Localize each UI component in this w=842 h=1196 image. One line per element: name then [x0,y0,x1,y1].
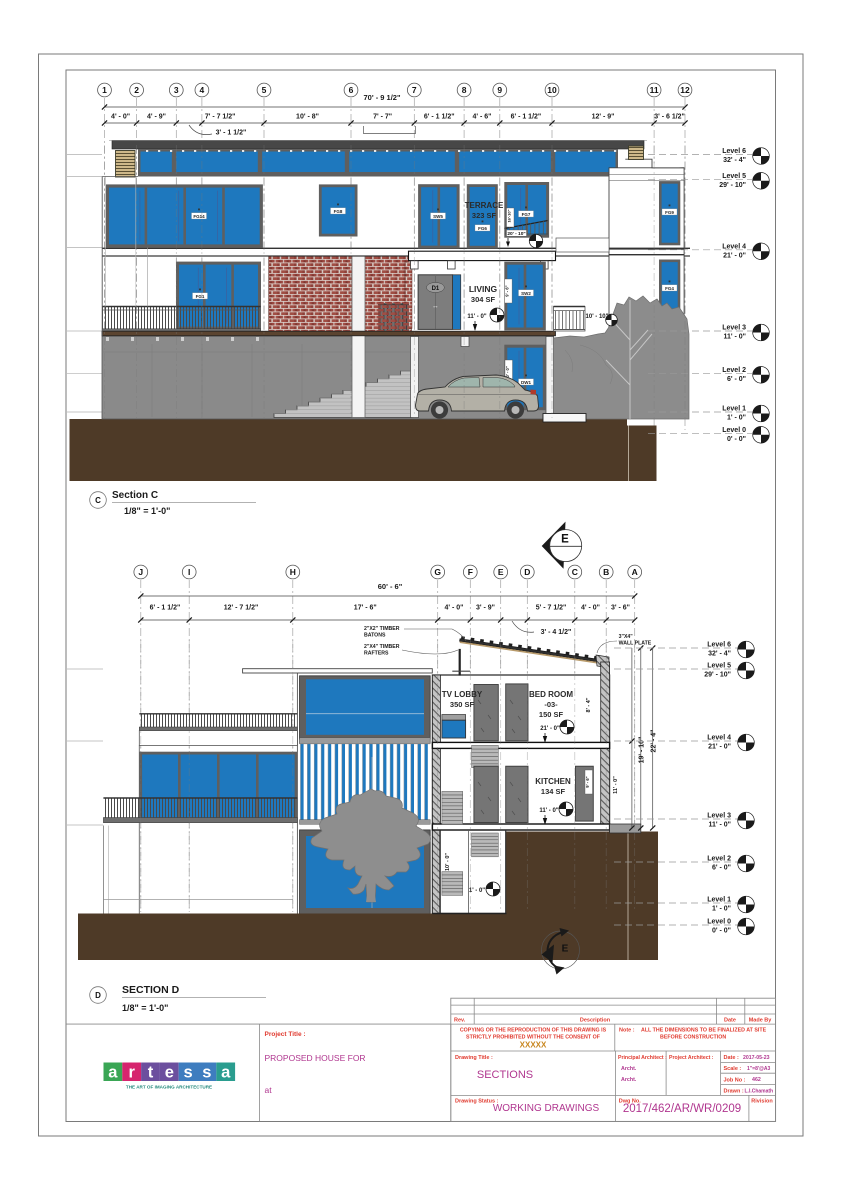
svg-text:BED ROOM: BED ROOM [529,690,573,699]
svg-text:THE ART OF IMAGING ARCHITECTUR: THE ART OF IMAGING ARCHITECTURE [126,1085,212,1090]
svg-text:1: 1 [102,85,107,95]
svg-text:12: 12 [680,85,690,95]
svg-text:D: D [95,991,101,1000]
svg-text:9' - 6": 9' - 6" [505,285,510,296]
svg-text:E: E [498,567,504,577]
svg-text:462: 462 [752,1077,761,1083]
svg-text:20' - 10": 20' - 10" [507,231,525,237]
svg-text:17' - 6": 17' - 6" [354,605,377,612]
svg-text:11' - 0": 11' - 0" [467,314,486,320]
svg-text:3' - 6 1/2": 3' - 6 1/2" [654,114,685,121]
svg-text:C: C [572,567,578,577]
svg-text:KITCHEN: KITCHEN [535,777,571,786]
svg-text:2017-05-23: 2017-05-23 [743,1055,770,1061]
svg-text:Level 3: Level 3 [707,813,731,820]
svg-text:Level 1: Level 1 [722,406,746,413]
svg-text:323 SF: 323 SF [472,211,497,220]
svg-text:9: 9 [497,85,502,95]
svg-text:60' - 6": 60' - 6" [378,582,403,591]
svg-text:t: t [148,1064,154,1082]
svg-text:2"X2" TIMBER: 2"X2" TIMBER [364,626,400,632]
svg-text:150 SF: 150 SF [539,710,564,719]
svg-text:at: at [265,1085,273,1095]
svg-text:LIVING: LIVING [469,284,498,294]
svg-text:32' - 4": 32' - 4" [708,651,731,658]
svg-text:7' - 7 1/2": 7' - 7 1/2" [205,114,236,121]
svg-text:11' - 0": 11' - 0" [613,776,619,794]
svg-text:11: 11 [650,85,659,95]
svg-text:D1: D1 [432,286,440,292]
svg-text:4' - 0": 4' - 0" [581,605,600,612]
svg-text:BATONS: BATONS [364,633,386,639]
svg-text:2017/462/AR/WR/0209: 2017/462/AR/WR/0209 [623,1103,741,1115]
svg-text:21' - 0": 21' - 0" [540,726,560,732]
svg-text:Rivision: Rivision [751,1099,773,1105]
svg-text:XXXXX: XXXXX [520,1041,547,1050]
svg-text:11' - 0": 11' - 0" [539,808,558,814]
svg-text:1/8" = 1'-0": 1/8" = 1'-0" [124,506,170,516]
svg-text:FG9: FG9 [665,210,674,215]
svg-text:FG1: FG1 [196,294,205,299]
svg-text:SW2: SW2 [521,291,531,296]
svg-text:Section C: Section C [112,490,158,501]
svg-text:Level 3: Level 3 [722,325,746,332]
svg-text:r: r [128,1064,135,1082]
svg-text:3' - 9": 3' - 9" [476,605,495,612]
svg-text:Date: Date [724,1018,736,1024]
svg-text:SECTIONS: SECTIONS [477,1069,533,1081]
svg-text:Scale :: Scale : [724,1066,742,1072]
svg-text:Principal Architect :: Principal Architect : [618,1055,667,1061]
svg-text:Drawn :: Drawn : [724,1089,744,1095]
svg-text:7' - 7": 7' - 7" [373,114,392,121]
svg-text:F: F [468,567,473,577]
svg-text:4' - 0": 4' - 0" [111,114,130,121]
svg-text:2"X4" TIMBER: 2"X4" TIMBER [364,644,400,650]
svg-text:Drawing Title :: Drawing Title : [455,1055,493,1061]
svg-text:Level 5: Level 5 [722,173,746,180]
svg-text:Level 6: Level 6 [707,642,731,649]
svg-text:10: 10 [547,85,557,95]
svg-text:21' - 0": 21' - 0" [723,252,746,259]
svg-text:1' - 0": 1' - 0" [712,906,731,913]
svg-text:PROPOSED HOUSE FOR: PROPOSED HOUSE FOR [265,1053,366,1063]
svg-text:Date :: Date : [724,1055,739,1061]
svg-text:6' - 0": 6' - 0" [712,865,731,872]
svg-text:Description: Description [580,1018,611,1024]
svg-text:FG6: FG6 [478,226,487,231]
svg-text:Level 4: Level 4 [707,735,731,742]
svg-text:11' - 0": 11' - 0" [724,334,747,341]
svg-text:SECTION D: SECTION D [122,984,180,996]
svg-text:3: 3 [174,85,179,95]
svg-text:I: I [188,567,190,577]
svg-text:12' - 9": 12' - 9" [592,114,615,121]
svg-text:1/8" = 1'-0": 1/8" = 1'-0" [122,1003,168,1013]
svg-text:DW1: DW1 [521,380,531,385]
svg-text:Project Title :: Project Title : [265,1031,306,1038]
svg-text:6' - 1 1/2": 6' - 1 1/2" [424,114,455,121]
svg-text:304 SF: 304 SF [471,295,496,304]
svg-text:29' - 10": 29' - 10" [704,672,731,679]
svg-text:10' - 10": 10' - 10" [586,314,609,320]
svg-text:WORKING DRAWINGS: WORKING DRAWINGS [493,1103,600,1114]
svg-text:Job No :: Job No : [724,1078,746,1084]
svg-text:a: a [108,1064,118,1082]
svg-text:1' - 0": 1' - 0" [469,888,485,894]
svg-text:2: 2 [134,85,139,95]
svg-text:6' - 1 1/2": 6' - 1 1/2" [511,114,542,121]
svg-text:s: s [184,1064,193,1082]
svg-text:BEFORE CONSTRUCTION: BEFORE CONSTRUCTION [660,1035,726,1041]
svg-text:SW5: SW5 [433,214,443,219]
svg-text:3' - 1 1/2": 3' - 1 1/2" [216,130,247,137]
svg-text:COPYING OR THE REPRODUCTION OF: COPYING OR THE REPRODUCTION OF THIS DRAW… [460,1028,607,1034]
svg-text:TERRACE: TERRACE [465,201,504,210]
svg-text:0' - 0": 0' - 0" [727,436,746,443]
svg-text:WALL PLATE: WALL PLATE [619,641,652,647]
svg-text:C: C [95,496,101,505]
svg-text:5' - 7 1/2": 5' - 7 1/2" [536,605,567,612]
svg-text:A: A [632,567,638,577]
svg-text:Archt.: Archt. [621,1066,637,1072]
svg-text:H: H [290,567,296,577]
svg-text:4' - 0": 4' - 0" [445,605,464,612]
svg-text:J: J [138,567,143,577]
svg-text:Level 2: Level 2 [722,367,746,374]
svg-text:70' - 9 1/2": 70' - 9 1/2" [363,93,400,102]
svg-text:RAFTERS: RAFTERS [364,651,389,657]
svg-text:3' - 6": 3' - 6" [611,605,630,612]
svg-text:Level 6: Level 6 [722,148,746,155]
svg-text:FG7: FG7 [522,212,531,217]
svg-text:Level 0: Level 0 [707,919,731,926]
svg-text:FG8: FG8 [334,209,343,214]
svg-text:6' - 0": 6' - 0" [727,376,746,383]
svg-text:Level 0: Level 0 [722,427,746,434]
svg-text:8: 8 [462,85,467,95]
svg-text:32' - 4": 32' - 4" [723,157,746,164]
svg-text:1"=8'@A3: 1"=8'@A3 [747,1066,771,1072]
svg-text:↔: ↔ [432,303,439,310]
svg-text:L.I.Chamath: L.I.Chamath [745,1089,774,1095]
svg-text:s: s [202,1064,211,1082]
svg-text:8' - 4": 8' - 4" [586,697,592,712]
svg-text:E: E [562,944,569,955]
svg-text:Level 1: Level 1 [707,897,731,904]
svg-text:29' - 10": 29' - 10" [719,182,746,189]
svg-text:Rev.: Rev. [454,1018,466,1024]
svg-text:7: 7 [412,85,417,95]
svg-text:6: 6 [349,85,354,95]
svg-text:10' - 8": 10' - 8" [296,114,319,121]
svg-text:9' - 6": 9' - 6" [585,776,590,787]
svg-text:a: a [221,1064,231,1082]
svg-text:D: D [524,567,530,577]
svg-text:134 SF: 134 SF [541,787,566,796]
svg-text:E: E [561,534,569,546]
svg-text:5: 5 [262,85,267,95]
svg-text:21' - 0": 21' - 0" [708,744,731,751]
svg-text:B: B [603,567,609,577]
svg-text:-03-: -03- [544,700,558,709]
svg-text:3"X4": 3"X4" [619,634,634,640]
svg-text:FG14: FG14 [193,214,205,219]
svg-text:3' - 4 1/2": 3' - 4 1/2" [541,629,572,636]
svg-text:FG4: FG4 [665,286,674,291]
svg-text:11' - 0": 11' - 0" [709,822,732,829]
svg-text:12' - 7 1/2": 12' - 7 1/2" [224,605,259,612]
svg-text:e: e [165,1064,174,1082]
svg-text:1' - 0": 1' - 0" [727,415,746,422]
svg-text:0' - 0": 0' - 0" [712,928,731,935]
svg-text:4' - 6": 4' - 6" [472,114,491,121]
svg-text:Level 2: Level 2 [707,856,731,863]
svg-text:4: 4 [200,85,205,95]
svg-text:10' - 0": 10' - 0" [445,853,451,871]
svg-text:TV LOBBY: TV LOBBY [442,690,483,699]
svg-text:Level 5: Level 5 [707,663,731,670]
svg-text:350 SF: 350 SF [450,700,475,709]
svg-text:6' - 1 1/2": 6' - 1 1/2" [150,605,181,612]
svg-text:ALL THE DIMENSIONS TO BE FINAL: ALL THE DIMENSIONS TO BE FINALIZED AT SI… [641,1028,767,1034]
svg-text:Note :: Note : [619,1028,635,1034]
svg-text:Project Architect :: Project Architect : [669,1055,714,1061]
svg-text:16'-10": 16'-10" [507,209,512,222]
svg-text:G: G [434,567,441,577]
svg-text:4' - 9": 4' - 9" [147,114,166,121]
svg-text:Level 4: Level 4 [722,243,746,250]
svg-text:Made By: Made By [749,1018,773,1024]
svg-text:Archt.: Archt. [621,1077,637,1083]
svg-text:19' - 10": 19' - 10" [639,737,646,764]
